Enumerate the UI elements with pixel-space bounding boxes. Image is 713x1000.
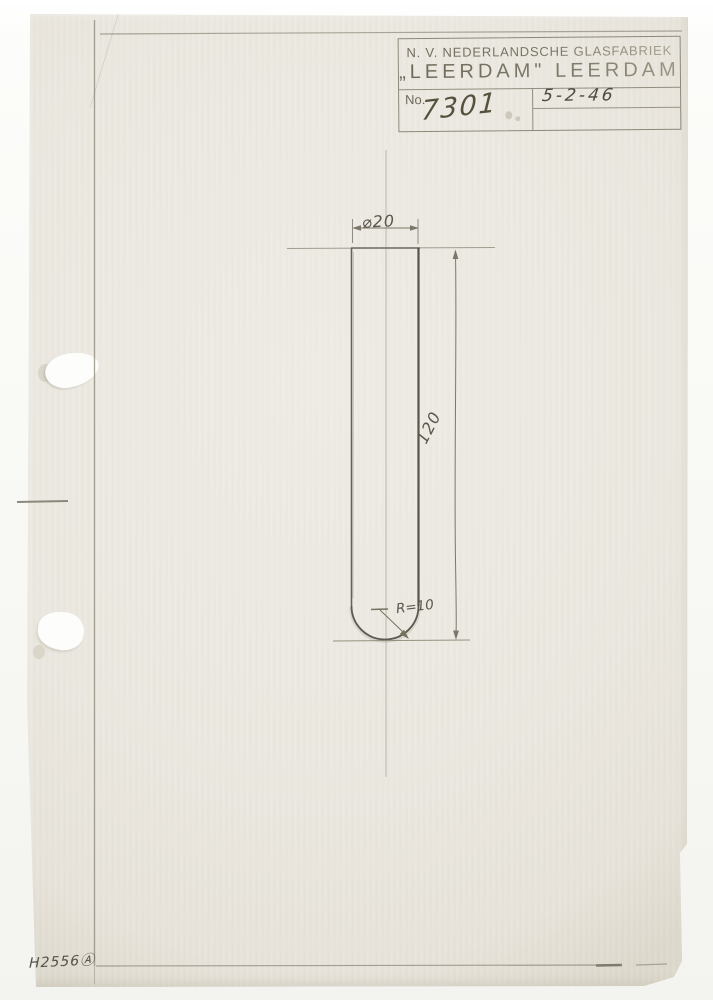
drawing-number-handwritten: 7301 <box>420 87 498 127</box>
company-name-line1: N. V. NEDERLANDSCHE GLASFABRIEK <box>406 42 672 59</box>
pencil-smudge <box>515 116 520 121</box>
date-cell: 5-2-46 <box>533 88 680 130</box>
scanned-drawing-sheet: N. V. NEDERLANDSCHE GLASFABRIEK „LEERDAM… <box>0 0 713 1000</box>
title-block-stamp: N. V. NEDERLANDSCHE GLASFABRIEK „LEERDAM… <box>398 36 682 132</box>
corner-inventory-mark: H2556Ⓐ <box>29 949 95 973</box>
company-name-line2: „LEERDAM" LEERDAM <box>399 58 680 83</box>
company-name-block: N. V. NEDERLANDSCHE GLASFABRIEK „LEERDAM… <box>399 37 680 90</box>
smudge-mark <box>33 645 45 659</box>
paper-sheet <box>24 12 691 988</box>
drawing-number-cell: No. 7301 <box>399 89 533 131</box>
pencil-smudge <box>505 111 512 119</box>
date-row: 5-2-46 <box>533 88 680 109</box>
diameter-label: ⌀20 <box>362 211 396 232</box>
date-handwritten: 5-2-46 <box>541 85 617 106</box>
empty-cell <box>533 108 680 130</box>
